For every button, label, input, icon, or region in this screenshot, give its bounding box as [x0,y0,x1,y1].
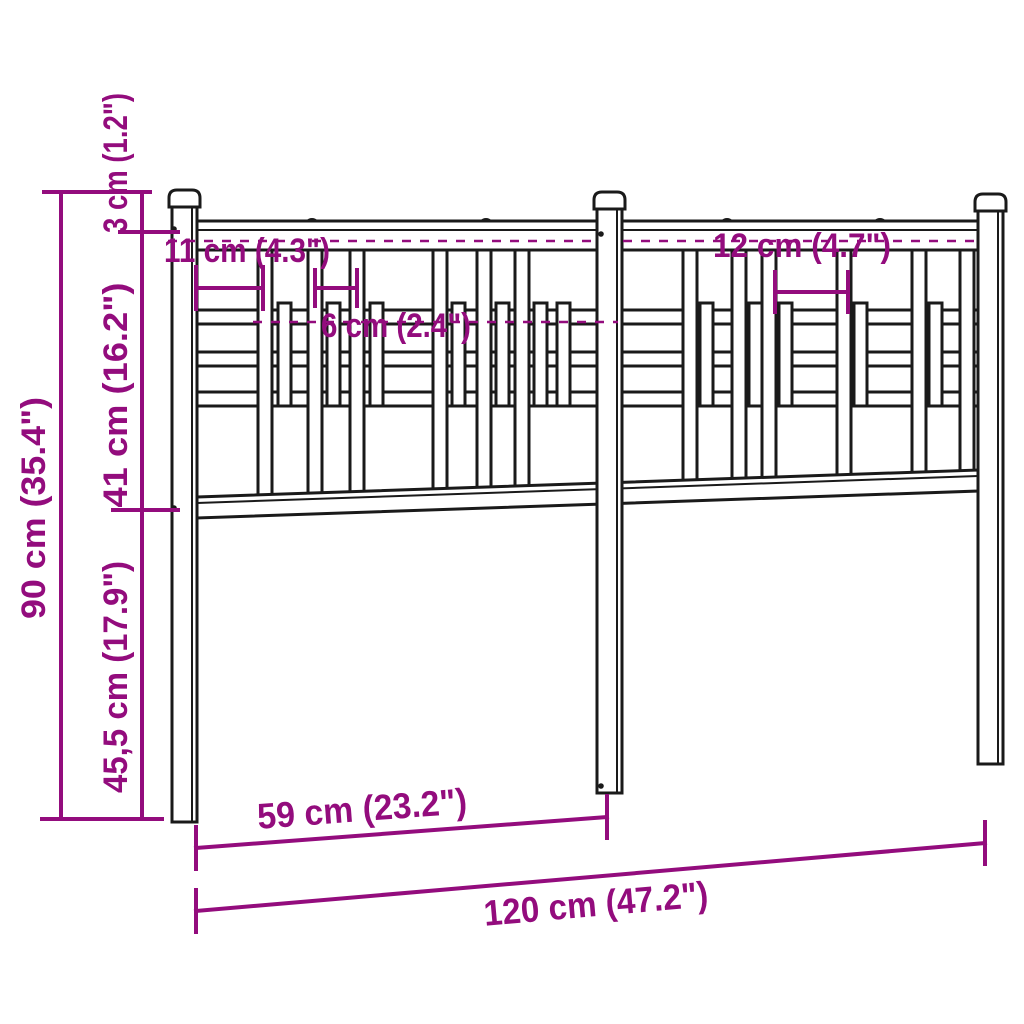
long-bar [477,247,491,499]
long-bar [912,247,926,484]
label-post-to-first-bar: 11 cm (4.3") [164,232,330,270]
short-bar [496,303,509,406]
middle-post [594,192,625,793]
short-bar [929,303,942,406]
headboard-drawing [169,190,1006,822]
dim-post-to-bar [196,267,263,309]
label-wide-bar-spacing: 12 cm (4.7") [713,227,891,265]
diagram-canvas: 90 cm (35.4") 3 cm (1.2") 41 cm (16.2") … [0,0,1024,1024]
long-bar [515,247,529,498]
short-bar [700,303,713,406]
long-bar [433,247,447,501]
label-post-cap-offset: 3 cm (1.2") [97,93,135,233]
short-bar [749,303,762,406]
long-bar [732,247,746,490]
post-cap [169,190,200,207]
post-cap [594,192,625,209]
short-bar [854,303,867,406]
long-bar [683,247,697,492]
short-bar [557,303,570,406]
label-total-height: 90 cm (35.4") [15,397,53,619]
screw-dot [598,231,604,237]
label-lower-post-height: 45,5 cm (17.9") [97,561,135,793]
headboard-dimension-diagram: 90 cm (35.4") 3 cm (1.2") 41 cm (16.2") … [0,0,1024,1024]
label-narrow-bar-spacing: 6 cm (2.4") [321,307,471,345]
dimension-annotations: 90 cm (35.4") 3 cm (1.2") 41 cm (16.2") … [15,93,985,934]
screw-dot [598,783,604,789]
short-bar [779,303,792,406]
long-bar [960,247,974,483]
short-bar [278,303,291,406]
right-post [975,194,1006,764]
label-grid-panel-height: 41 cm (16.2") [97,283,135,508]
short-bar [534,303,547,406]
post-cap [975,194,1006,211]
